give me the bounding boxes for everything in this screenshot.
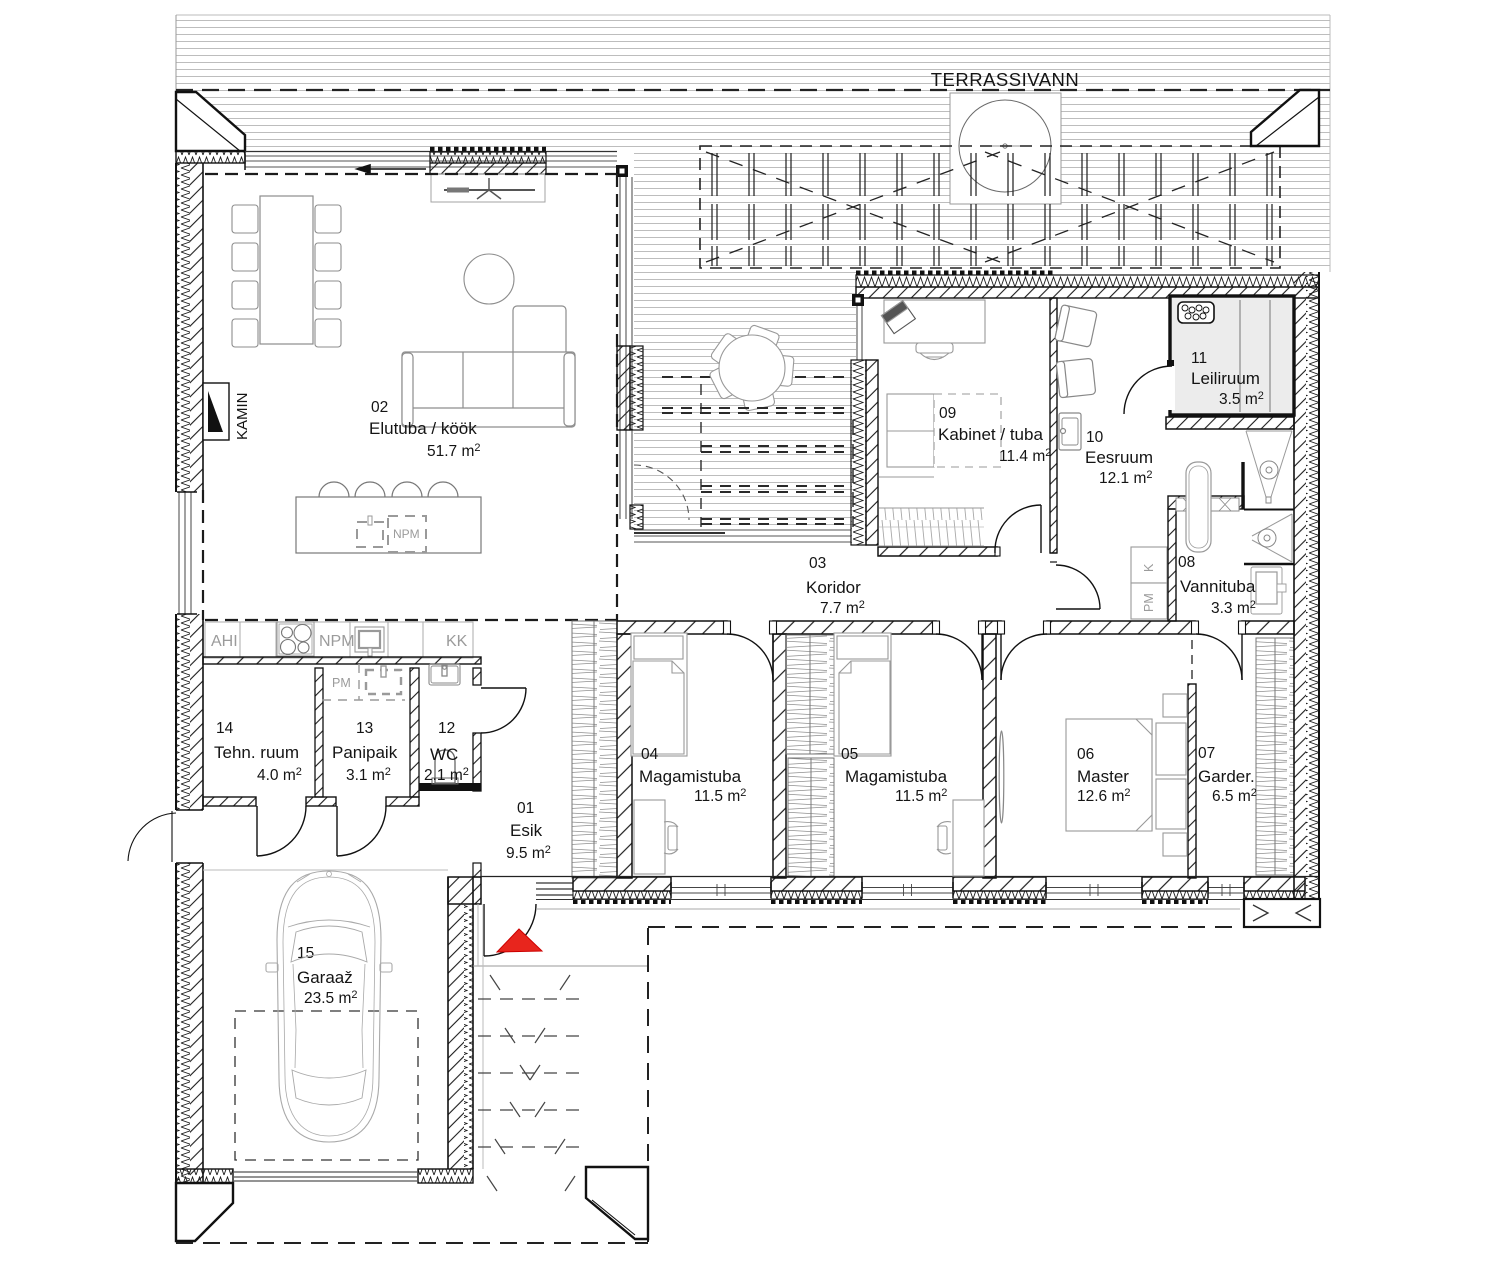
svg-text:Eesruum: Eesruum — [1085, 448, 1153, 467]
svg-text:Magamistuba: Magamistuba — [639, 767, 742, 786]
svg-text:12.6 m2: 12.6 m2 — [1077, 787, 1131, 805]
svg-text:3.3 m2: 3.3 m2 — [1211, 599, 1256, 617]
svg-text:Tehn. ruum: Tehn. ruum — [214, 743, 299, 762]
svg-text:06: 06 — [1077, 746, 1094, 763]
svg-text:05: 05 — [841, 746, 858, 763]
svg-text:AHI: AHI — [211, 633, 238, 650]
svg-text:07: 07 — [1198, 745, 1215, 762]
svg-text:KK: KK — [446, 633, 468, 650]
svg-text:9.5 m2: 9.5 m2 — [506, 844, 551, 862]
svg-text:Koridor: Koridor — [806, 578, 861, 597]
svg-text:03: 03 — [809, 555, 826, 572]
svg-text:TERRASSIVANN: TERRASSIVANN — [931, 69, 1080, 90]
svg-text:13: 13 — [356, 720, 373, 737]
svg-text:6.5 m2: 6.5 m2 — [1212, 787, 1257, 805]
svg-text:01: 01 — [517, 800, 534, 817]
svg-text:K: K — [1142, 563, 1156, 572]
svg-text:3.5 m2: 3.5 m2 — [1219, 390, 1264, 408]
svg-text:PM: PM — [332, 676, 351, 690]
svg-text:12: 12 — [438, 720, 455, 737]
svg-text:12.1 m2: 12.1 m2 — [1099, 469, 1153, 487]
svg-text:04: 04 — [641, 746, 659, 763]
svg-text:2.1 m2: 2.1 m2 — [424, 766, 469, 784]
svg-text:4.0 m2: 4.0 m2 — [257, 766, 302, 784]
svg-text:15: 15 — [297, 945, 314, 962]
svg-text:7.7 m2: 7.7 m2 — [820, 599, 865, 617]
svg-text:Garder.: Garder. — [1198, 767, 1255, 786]
svg-text:Panipaik: Panipaik — [332, 743, 398, 762]
svg-text:3.1 m2: 3.1 m2 — [346, 766, 391, 784]
svg-text:NPM: NPM — [319, 633, 355, 650]
svg-text:11: 11 — [1191, 350, 1207, 367]
svg-text:02: 02 — [371, 399, 388, 416]
svg-text:Elutuba / köök: Elutuba / köök — [369, 419, 477, 438]
svg-text:11.5 m2: 11.5 m2 — [694, 787, 746, 805]
svg-text:Vannituba: Vannituba — [1180, 577, 1256, 596]
svg-text:09: 09 — [939, 405, 956, 422]
svg-text:Kabinet / tuba: Kabinet / tuba — [938, 425, 1043, 444]
svg-text:Master: Master — [1077, 767, 1129, 786]
svg-text:11.4 m2: 11.4 m2 — [999, 447, 1051, 465]
svg-text:Magamistuba: Magamistuba — [845, 767, 948, 786]
svg-text:Garaaž: Garaaž — [297, 968, 353, 987]
svg-text:08: 08 — [1178, 554, 1195, 571]
svg-text:KAMIN: KAMIN — [234, 392, 251, 440]
svg-text:NPM: NPM — [393, 527, 420, 541]
svg-text:11.5 m2: 11.5 m2 — [895, 787, 947, 805]
svg-text:14: 14 — [216, 720, 234, 737]
svg-text:51.7 m2: 51.7 m2 — [427, 442, 481, 460]
svg-text:10: 10 — [1086, 429, 1104, 446]
svg-text:23.5 m2: 23.5 m2 — [304, 989, 358, 1007]
svg-text:Leiliruum: Leiliruum — [1191, 369, 1260, 388]
svg-text:WC: WC — [430, 745, 458, 764]
svg-text:Esik: Esik — [510, 821, 543, 840]
svg-text:PM: PM — [1142, 593, 1156, 612]
